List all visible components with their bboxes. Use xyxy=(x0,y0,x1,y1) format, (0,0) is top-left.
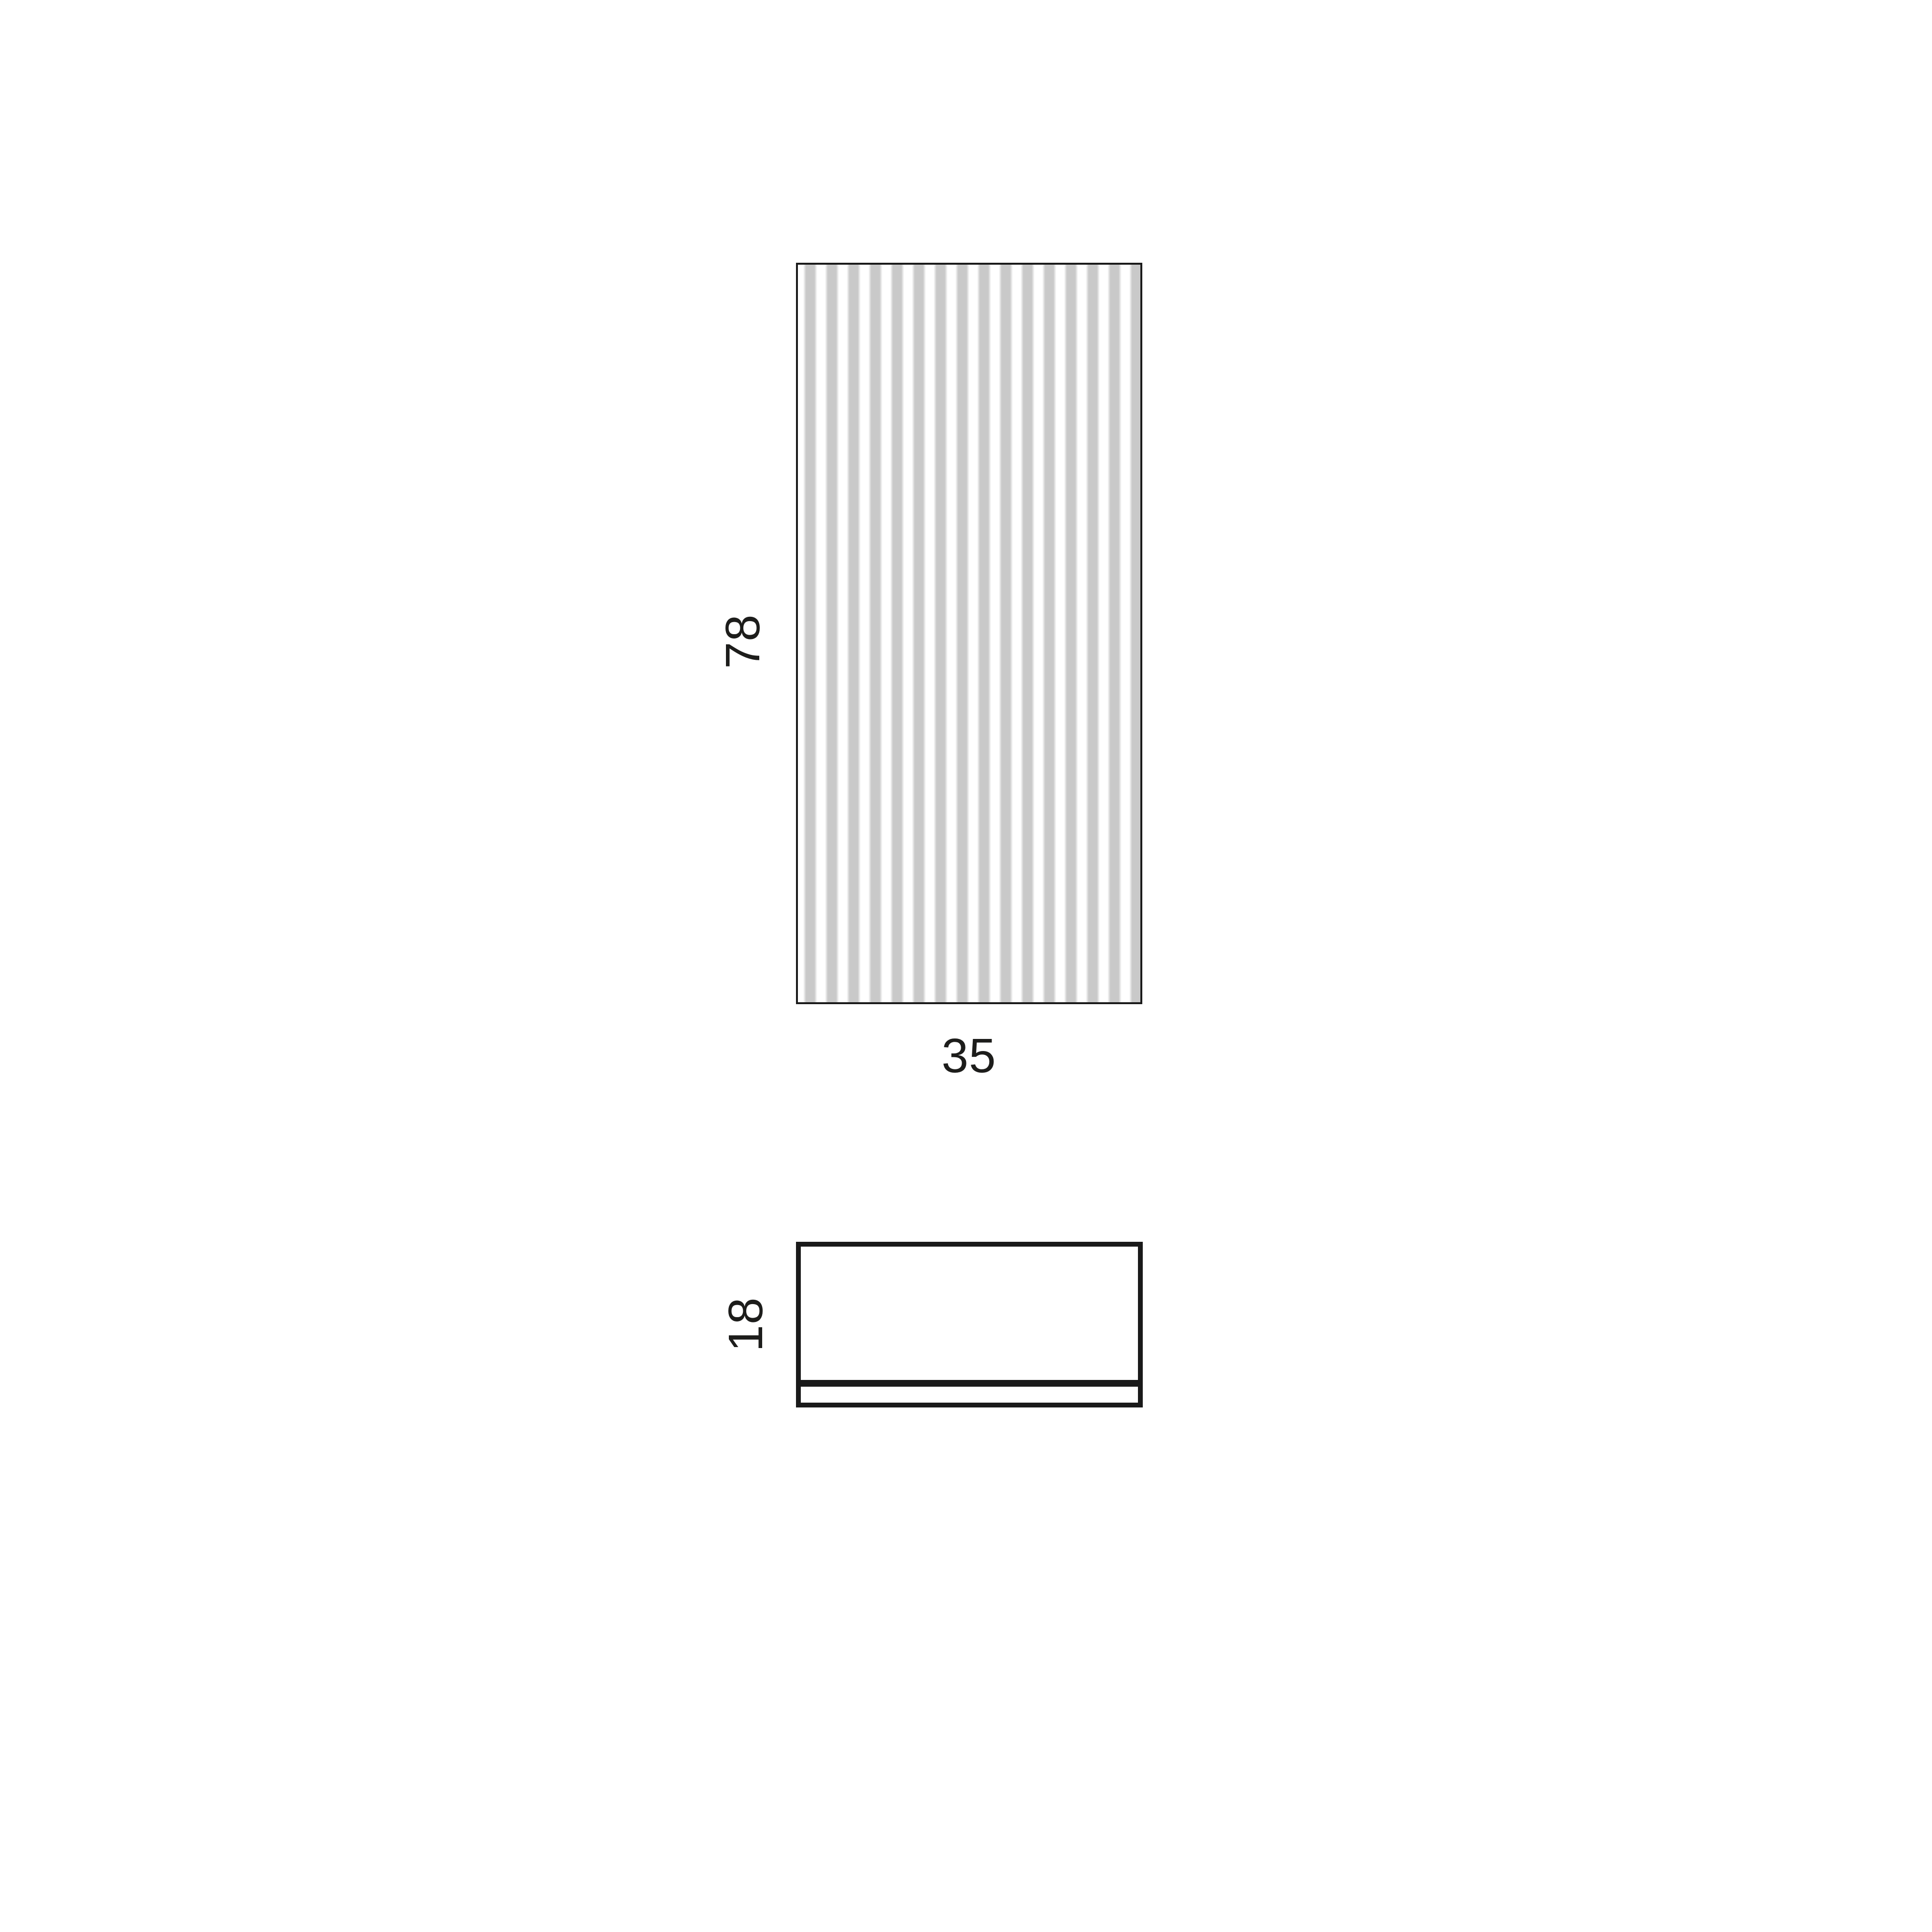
side-height-dimension-label: 18 xyxy=(722,1297,770,1351)
front-height-dimension-label: 78 xyxy=(719,614,767,668)
side-panel-rect xyxy=(796,1242,1143,1407)
front-panel-fluted-rect xyxy=(796,263,1142,1004)
plinth-divider-line xyxy=(801,1380,1138,1387)
dimension-drawing-canvas: 78 35 18 xyxy=(0,0,1932,1932)
front-width-dimension-label: 35 xyxy=(941,1032,996,1080)
